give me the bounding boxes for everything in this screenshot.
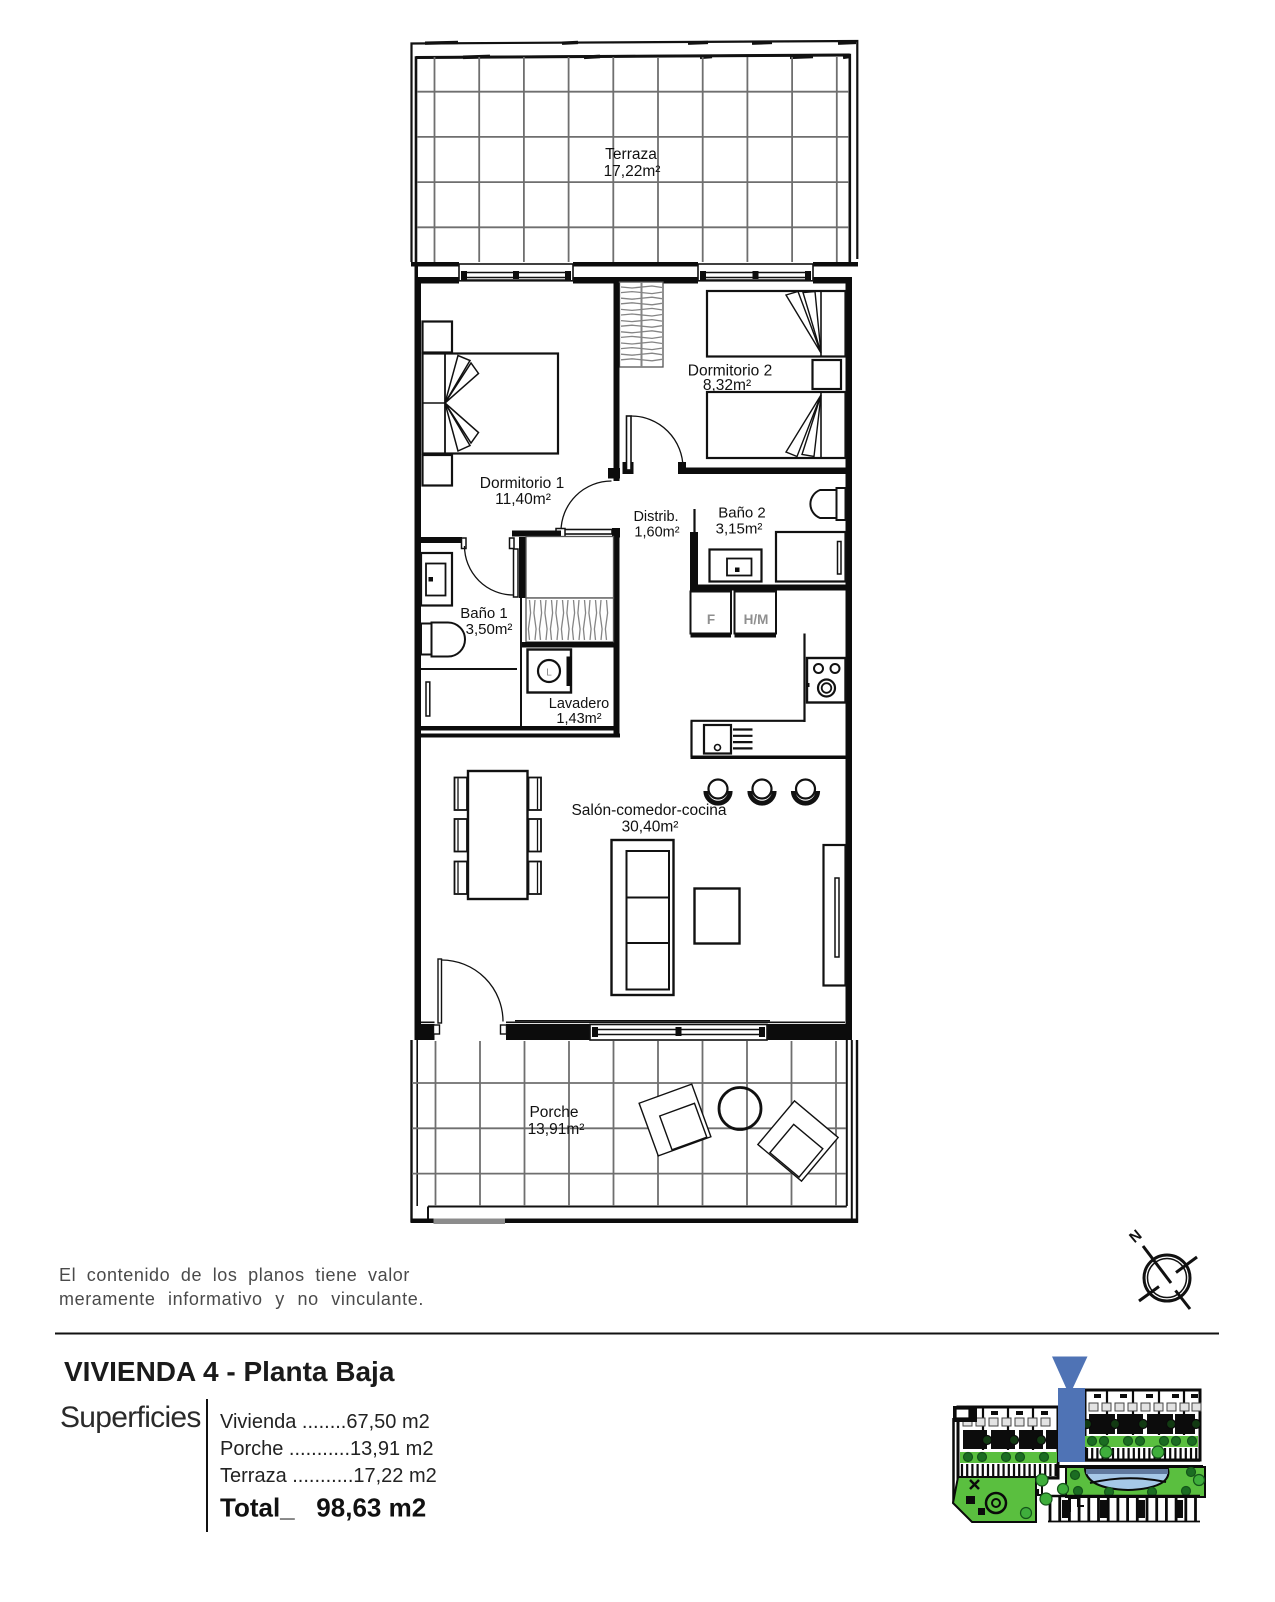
svg-text:H/M: H/M: [744, 612, 769, 627]
svg-text:Dormitorio 1: Dormitorio 1: [480, 475, 564, 492]
svg-text:1,43m²: 1,43m²: [556, 711, 601, 727]
svg-text:3,50m²: 3,50m²: [466, 621, 513, 638]
svg-text:17,22m²: 17,22m²: [604, 163, 661, 180]
svg-text:30,40m²: 30,40m²: [622, 819, 679, 836]
svg-text:3,15m²: 3,15m²: [716, 521, 763, 538]
svg-text:El contenido de los planos tie: El contenido de los planos tiene valor: [59, 1265, 410, 1285]
svg-text:1,60m²: 1,60m²: [634, 525, 679, 541]
svg-text:F: F: [707, 612, 715, 627]
svg-text:Baño 2: Baño 2: [718, 505, 766, 522]
svg-text:Baño 1: Baño 1: [460, 605, 508, 622]
svg-text:Superficies: Superficies: [60, 1401, 201, 1434]
svg-text:8,32m²: 8,32m²: [703, 377, 751, 394]
svg-text:Distrib.: Distrib.: [633, 509, 678, 525]
svg-text:13,91m²: 13,91m²: [528, 1121, 585, 1138]
svg-text:Terraza: Terraza: [605, 146, 657, 163]
svg-text:Porche ...........13,91 m2: Porche ...........13,91 m2: [220, 1438, 433, 1460]
svg-text:Salón-comedor-cocina: Salón-comedor-cocina: [571, 802, 726, 819]
svg-text:11,40m²: 11,40m²: [495, 491, 551, 508]
svg-text:Vivienda ........67,50 m2: Vivienda ........67,50 m2: [220, 1411, 430, 1433]
svg-text:L: L: [546, 668, 552, 679]
svg-text:VIVIENDA 4 - Planta Baja: VIVIENDA 4 - Planta Baja: [64, 1356, 395, 1387]
svg-text:Terraza ...........17,22 m2: Terraza ...........17,22 m2: [220, 1465, 437, 1487]
svg-text:Total_ 98,63 m2: Total_ 98,63 m2: [220, 1493, 426, 1523]
svg-text:Lavadero: Lavadero: [549, 696, 609, 712]
svg-text:Porche: Porche: [529, 1104, 578, 1121]
svg-text:meramente informativo y no vin: meramente informativo y no vinculante.: [59, 1289, 424, 1309]
